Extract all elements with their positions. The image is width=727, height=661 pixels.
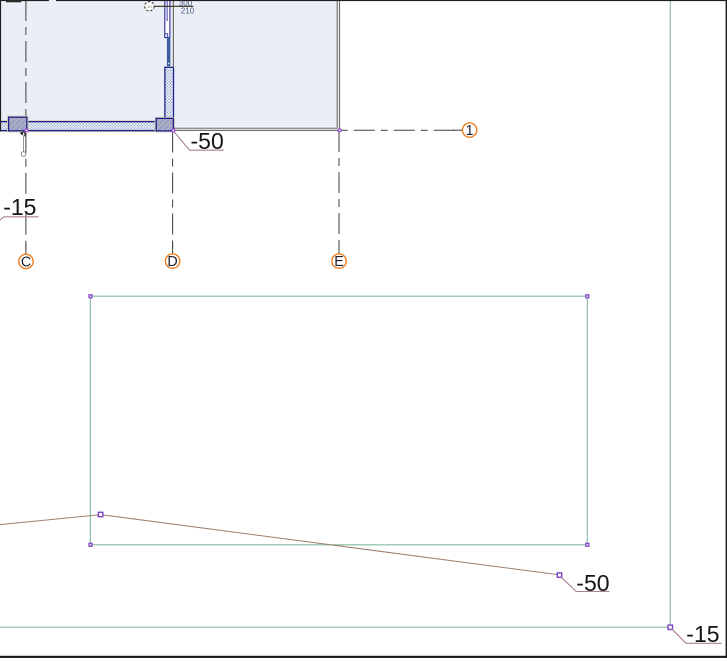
svg-text:-50: -50 bbox=[191, 128, 224, 154]
svg-text:-50: -50 bbox=[576, 570, 609, 596]
svg-text:E: E bbox=[334, 254, 344, 270]
svg-text:-15: -15 bbox=[3, 194, 36, 220]
svg-text:1: 1 bbox=[466, 123, 474, 139]
svg-text:D: D bbox=[167, 254, 177, 270]
svg-text:210: 210 bbox=[181, 6, 195, 15]
svg-text:-15: -15 bbox=[686, 621, 719, 647]
svg-text:C: C bbox=[21, 255, 31, 271]
svg-text:10: 10 bbox=[147, 4, 152, 9]
